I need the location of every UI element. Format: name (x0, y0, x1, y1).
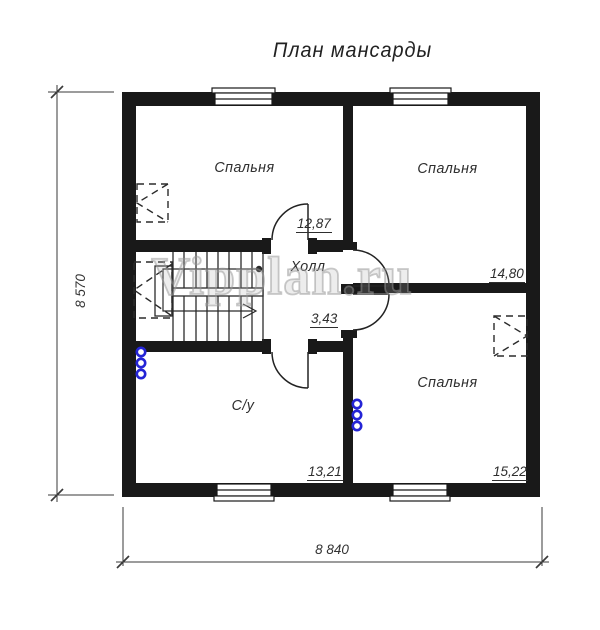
door-bathroom (272, 352, 308, 388)
door-jamb (341, 330, 357, 338)
page-title: План мансарды (246, 38, 460, 64)
window-bottom-left (214, 484, 274, 501)
wall-hall-bottom-left (136, 341, 262, 352)
wall-hall-bottom-right (317, 341, 343, 352)
room-label-bathroom: С/у (209, 396, 277, 414)
plumbing-risers (137, 348, 361, 430)
room-area-hall: 3,43 (310, 311, 338, 328)
roof-window-symbol-bedroom3 (494, 316, 527, 356)
wall-center-upper (343, 106, 353, 250)
room-area-bedroom3: 15,22 (492, 464, 528, 481)
wall-bottom (122, 483, 540, 497)
plumbing-riser-icon (353, 400, 361, 430)
room-label-bedroom2: Спальня (393, 159, 502, 177)
window-top-left (212, 88, 275, 105)
roof-window-symbol-bedroom1 (137, 184, 168, 222)
room-label-bedroom1: Спальня (190, 158, 299, 176)
door-jamb (308, 339, 317, 354)
floor-plan-canvas: План мансарды Спальня 12,87 Спальня 14,8… (0, 0, 600, 630)
dimension-text-width: 8 840 (282, 541, 382, 557)
room-area-bedroom1: 12,87 (296, 216, 332, 233)
room-area-bathroom: 13,21 (307, 464, 343, 481)
window-bottom-right (390, 484, 450, 501)
wall-top (122, 92, 540, 106)
room-label-bedroom3: Спальня (393, 373, 502, 391)
door-jamb (262, 339, 271, 354)
wall-center-lower (343, 338, 353, 483)
wall-right (526, 92, 540, 497)
plumbing-riser-icon (137, 348, 145, 378)
watermark: Vipplan.ru (92, 246, 472, 310)
window-top-right (390, 88, 451, 105)
room-area-bedroom2: 14,80 (489, 266, 525, 283)
dimension-width (116, 507, 549, 568)
